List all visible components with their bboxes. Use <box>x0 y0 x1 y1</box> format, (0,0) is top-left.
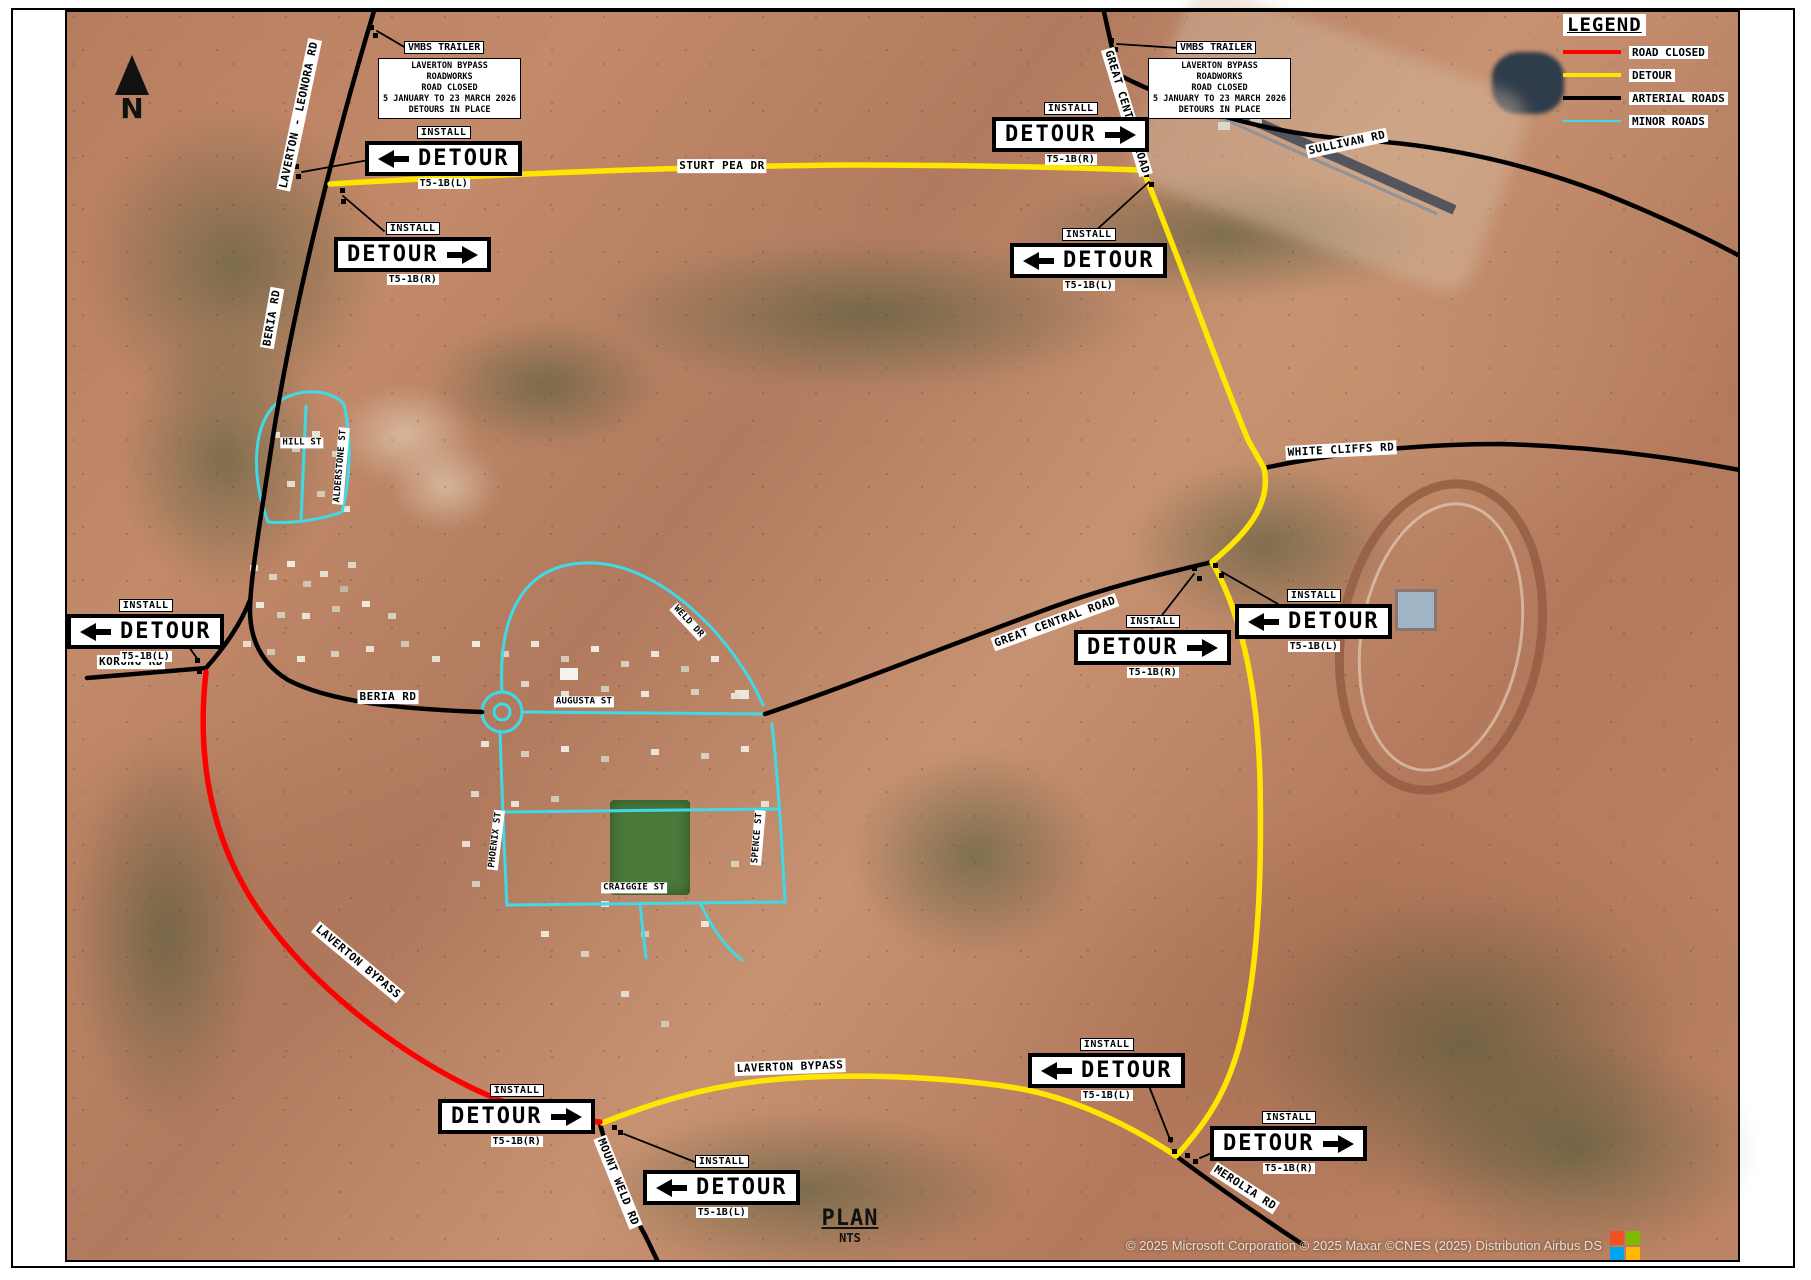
vmbs-line: ROAD CLOSED <box>1153 83 1286 94</box>
detour-sign-board: DETOUR <box>438 1099 595 1134</box>
legend-row: ARTERIAL ROADS <box>1563 91 1735 105</box>
detour-sign-label: DETOUR <box>1223 1131 1314 1156</box>
closed-laverton-bypass <box>203 672 600 1122</box>
detour-sign-board: DETOUR <box>1028 1053 1185 1088</box>
trailer-symbol <box>341 199 346 204</box>
arrow-icon <box>447 246 478 264</box>
road-town-stub2 <box>700 903 742 960</box>
arrow-icon <box>1187 639 1218 657</box>
callout-line <box>1117 44 1178 48</box>
road-alderstone-st <box>301 406 306 521</box>
imagery-attribution: © 2025 Microsoft Corporation © 2025 Maxa… <box>1070 1238 1602 1253</box>
install-note: INSTALL <box>1262 1111 1316 1124</box>
trailer-symbol <box>373 33 378 38</box>
sign-code: T5-1B(R) <box>1263 1163 1315 1174</box>
trailer-symbol <box>1109 38 1114 43</box>
microsoft-logo-icon <box>1610 1231 1640 1261</box>
detour-sign-group: INSTALL DETOUR T5-1B(L) <box>643 1155 800 1218</box>
detour-sign-group: INSTALL DETOUR T5-1B(R) <box>1210 1111 1367 1174</box>
detour-sign-group: INSTALL DETOUR T5-1B(R) <box>1074 615 1231 678</box>
trailer-symbol <box>1197 576 1202 581</box>
north-arrow-icon <box>115 55 149 95</box>
trailer-symbol <box>296 174 301 179</box>
trailer-symbol <box>612 1125 617 1130</box>
legend-row: DETOUR <box>1563 68 1735 82</box>
arrow-icon <box>378 150 409 168</box>
trailer-symbol <box>1193 1159 1198 1164</box>
roundabout-inner <box>494 704 510 720</box>
arrow-icon <box>80 623 111 641</box>
detour-sign-board: DETOUR <box>992 117 1149 152</box>
detour-sign-board: DETOUR <box>365 141 522 176</box>
trailer-symbol <box>1192 566 1197 571</box>
vmbs-message-box: LAVERTON BYPASS ROADWORKS ROAD CLOSED 5 … <box>1148 58 1291 119</box>
detour-sign-label: DETOUR <box>1063 248 1154 273</box>
road-closed-swatch <box>1563 50 1621 54</box>
sign-code: T5-1B(R) <box>491 1136 543 1147</box>
sign-code: T5-1B(L) <box>1063 280 1115 291</box>
vmbs-line: LAVERTON BYPASS <box>1153 61 1286 72</box>
road-label-beria-lower: BERIA RD <box>358 690 419 704</box>
sign-code: T5-1B(L) <box>418 178 470 189</box>
logo-square <box>1610 1231 1624 1245</box>
trailer-symbol <box>1185 1153 1190 1158</box>
detour-sign-label: DETOUR <box>120 619 211 644</box>
trailer-symbol <box>1172 1149 1177 1154</box>
detour-sign-group: INSTALL DETOUR T5-1B(L) <box>1010 228 1167 291</box>
detour-sign-group: INSTALL DETOUR T5-1B(L) <box>1028 1038 1185 1101</box>
roundabout <box>482 692 522 732</box>
arterial-swatch <box>1563 96 1621 100</box>
trailer-symbol <box>1213 563 1218 568</box>
sign-code: T5-1B(R) <box>1045 154 1097 165</box>
legend-title: LEGEND <box>1563 14 1646 36</box>
legend-label: DETOUR <box>1629 69 1675 82</box>
north-label: N <box>100 95 164 123</box>
detour-sign-board: DETOUR <box>643 1170 800 1205</box>
legend-row: ROAD CLOSED <box>1563 45 1735 59</box>
legend-label: ARTERIAL ROADS <box>1629 92 1728 105</box>
arrow-icon <box>1323 1135 1354 1153</box>
detour-sign-label: DETOUR <box>347 242 438 267</box>
vmbs-trailer-callout: VMBS TRAILER <box>404 41 484 54</box>
minor-swatch <box>1563 120 1621 123</box>
road-label-craiggie-st: CRAIGGIE ST <box>601 882 667 893</box>
install-note: INSTALL <box>1044 102 1098 115</box>
road-spence-st <box>772 724 785 902</box>
detour-sign-group: INSTALL DETOUR T5-1B(L) <box>1235 589 1392 652</box>
trailer-symbol <box>197 669 202 674</box>
road-town-mid <box>503 809 778 812</box>
roadworks-plan-sheet: LAVERTON - LEONORA RD BERIA RD BERIA RD … <box>0 0 1811 1280</box>
sign-code: T5-1B(L) <box>120 651 172 662</box>
trailer-symbol <box>369 25 374 30</box>
arrow-icon <box>551 1108 582 1126</box>
road-label-augusta-st: AUGUSTA ST <box>554 696 614 707</box>
arrow-icon <box>1041 1062 1072 1080</box>
detour-sign-board: DETOUR <box>1074 630 1231 665</box>
install-note: INSTALL <box>417 126 471 139</box>
road-town-stub <box>640 904 646 958</box>
plan-scale: NTS <box>800 1231 900 1245</box>
detour-sign-board: DETOUR <box>1010 243 1167 278</box>
legend: LEGEND ROAD CLOSED DETOUR ARTERIAL ROADS… <box>1563 14 1735 128</box>
detour-sign-label: DETOUR <box>418 146 509 171</box>
vmbs-line: DETOURS IN PLACE <box>383 105 516 116</box>
detour-sign-board: DETOUR <box>1210 1126 1367 1161</box>
trailer-symbol <box>1219 573 1224 578</box>
arrow-icon <box>1023 252 1054 270</box>
vmbs-line: 5 JANUARY TO 23 MARCH 2026 <box>1153 94 1286 105</box>
logo-square <box>1626 1247 1640 1261</box>
trailer-symbol <box>340 188 345 193</box>
sign-code: T5-1B(L) <box>1288 641 1340 652</box>
detour-swatch <box>1563 73 1621 77</box>
detour-sign-label: DETOUR <box>696 1175 787 1200</box>
road-label-sturt-pea: STURT PEA DR <box>677 159 766 173</box>
town-buildings <box>0 0 8 6</box>
road-label-hill-st: HILL ST <box>280 437 323 448</box>
detour-sign-group: INSTALL DETOUR T5-1B(L) <box>67 599 224 662</box>
trailer-symbol <box>1168 1137 1173 1142</box>
install-note: INSTALL <box>1062 228 1116 241</box>
callout-line <box>1092 182 1149 234</box>
sign-code: T5-1B(L) <box>696 1207 748 1218</box>
north-arrow: N <box>100 55 164 123</box>
detour-sign-group: INSTALL DETOUR T5-1B(R) <box>438 1084 595 1147</box>
legend-row: MINOR ROADS <box>1563 114 1735 128</box>
detour-sign-board: DETOUR <box>67 614 224 649</box>
detour-sign-label: DETOUR <box>1288 609 1379 634</box>
detour-sign-label: DETOUR <box>1087 635 1178 660</box>
vmbs-line: 5 JANUARY TO 23 MARCH 2026 <box>383 94 516 105</box>
road-korong <box>87 668 206 678</box>
install-note: INSTALL <box>490 1084 544 1097</box>
arrow-icon <box>656 1179 687 1197</box>
detour-sign-label: DETOUR <box>1005 122 1096 147</box>
plan-title-block: PLAN NTS <box>800 1206 900 1245</box>
vmbs-message-box: LAVERTON BYPASS ROADWORKS ROAD CLOSED 5 … <box>378 58 521 119</box>
vmbs-line: ROAD CLOSED <box>383 83 516 94</box>
road-augusta-st <box>522 712 765 714</box>
detour-sign-board: DETOUR <box>1235 604 1392 639</box>
vmbs-line: ROADWORKS <box>383 72 516 83</box>
plan-title: PLAN <box>800 1206 900 1231</box>
logo-square <box>1626 1231 1640 1245</box>
detour-sign-group: INSTALL DETOUR T5-1B(R) <box>334 222 491 285</box>
vmbs-line: DETOURS IN PLACE <box>1153 105 1286 116</box>
callout-line <box>377 31 406 48</box>
sign-code: T5-1B(R) <box>1127 667 1179 678</box>
vmbs-trailer-callout: VMBS TRAILER <box>1176 41 1256 54</box>
vmbs-line: ROADWORKS <box>1153 72 1286 83</box>
detour-sign-board: DETOUR <box>334 237 491 272</box>
install-note: INSTALL <box>1287 589 1341 602</box>
sign-code: T5-1B(R) <box>387 274 439 285</box>
detour-sign-label: DETOUR <box>1081 1058 1172 1083</box>
arrow-icon <box>1248 613 1279 631</box>
install-note: INSTALL <box>1080 1038 1134 1051</box>
install-note: INSTALL <box>386 222 440 235</box>
detour-sign-group: INSTALL DETOUR T5-1B(R) <box>992 102 1149 165</box>
detour-sign-label: DETOUR <box>451 1104 542 1129</box>
road-weld-dr <box>502 563 763 705</box>
logo-square <box>1610 1247 1624 1261</box>
install-note: INSTALL <box>695 1155 749 1168</box>
roads-layer <box>65 10 1740 1262</box>
trailer-symbol <box>618 1130 623 1135</box>
install-note: INSTALL <box>1126 615 1180 628</box>
vmbs-line: LAVERTON BYPASS <box>383 61 516 72</box>
legend-label: MINOR ROADS <box>1629 115 1708 128</box>
road-craiggie-st <box>507 902 785 905</box>
sign-code: T5-1B(L) <box>1081 1090 1133 1101</box>
detour-sign-group: INSTALL DETOUR T5-1B(L) <box>365 126 522 189</box>
arrow-icon <box>1105 126 1136 144</box>
trailer-symbol <box>1149 182 1154 187</box>
legend-label: ROAD CLOSED <box>1629 46 1708 59</box>
install-note: INSTALL <box>119 599 173 612</box>
